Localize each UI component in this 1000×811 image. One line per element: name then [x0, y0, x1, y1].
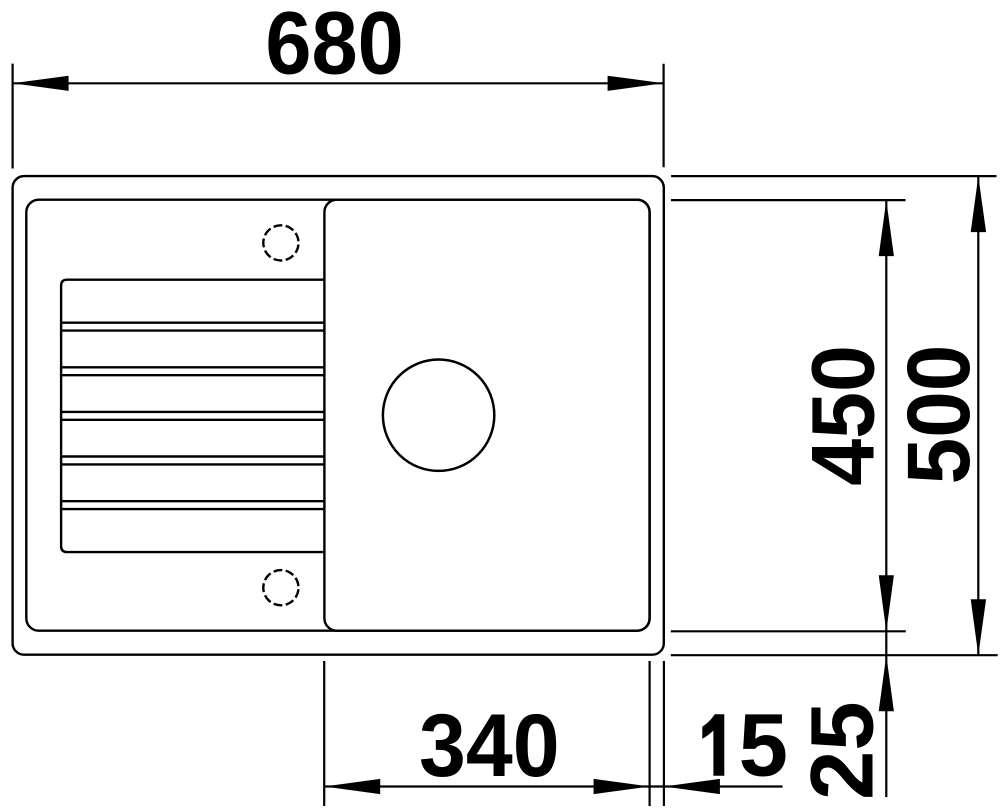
svg-text:680: 680 [265, 0, 403, 93]
svg-text:340: 340 [419, 697, 560, 795]
svg-text:450: 450 [795, 345, 893, 486]
svg-text:500: 500 [890, 345, 989, 485]
svg-text:25: 25 [793, 701, 892, 800]
svg-text:5: 5 [739, 695, 788, 794]
